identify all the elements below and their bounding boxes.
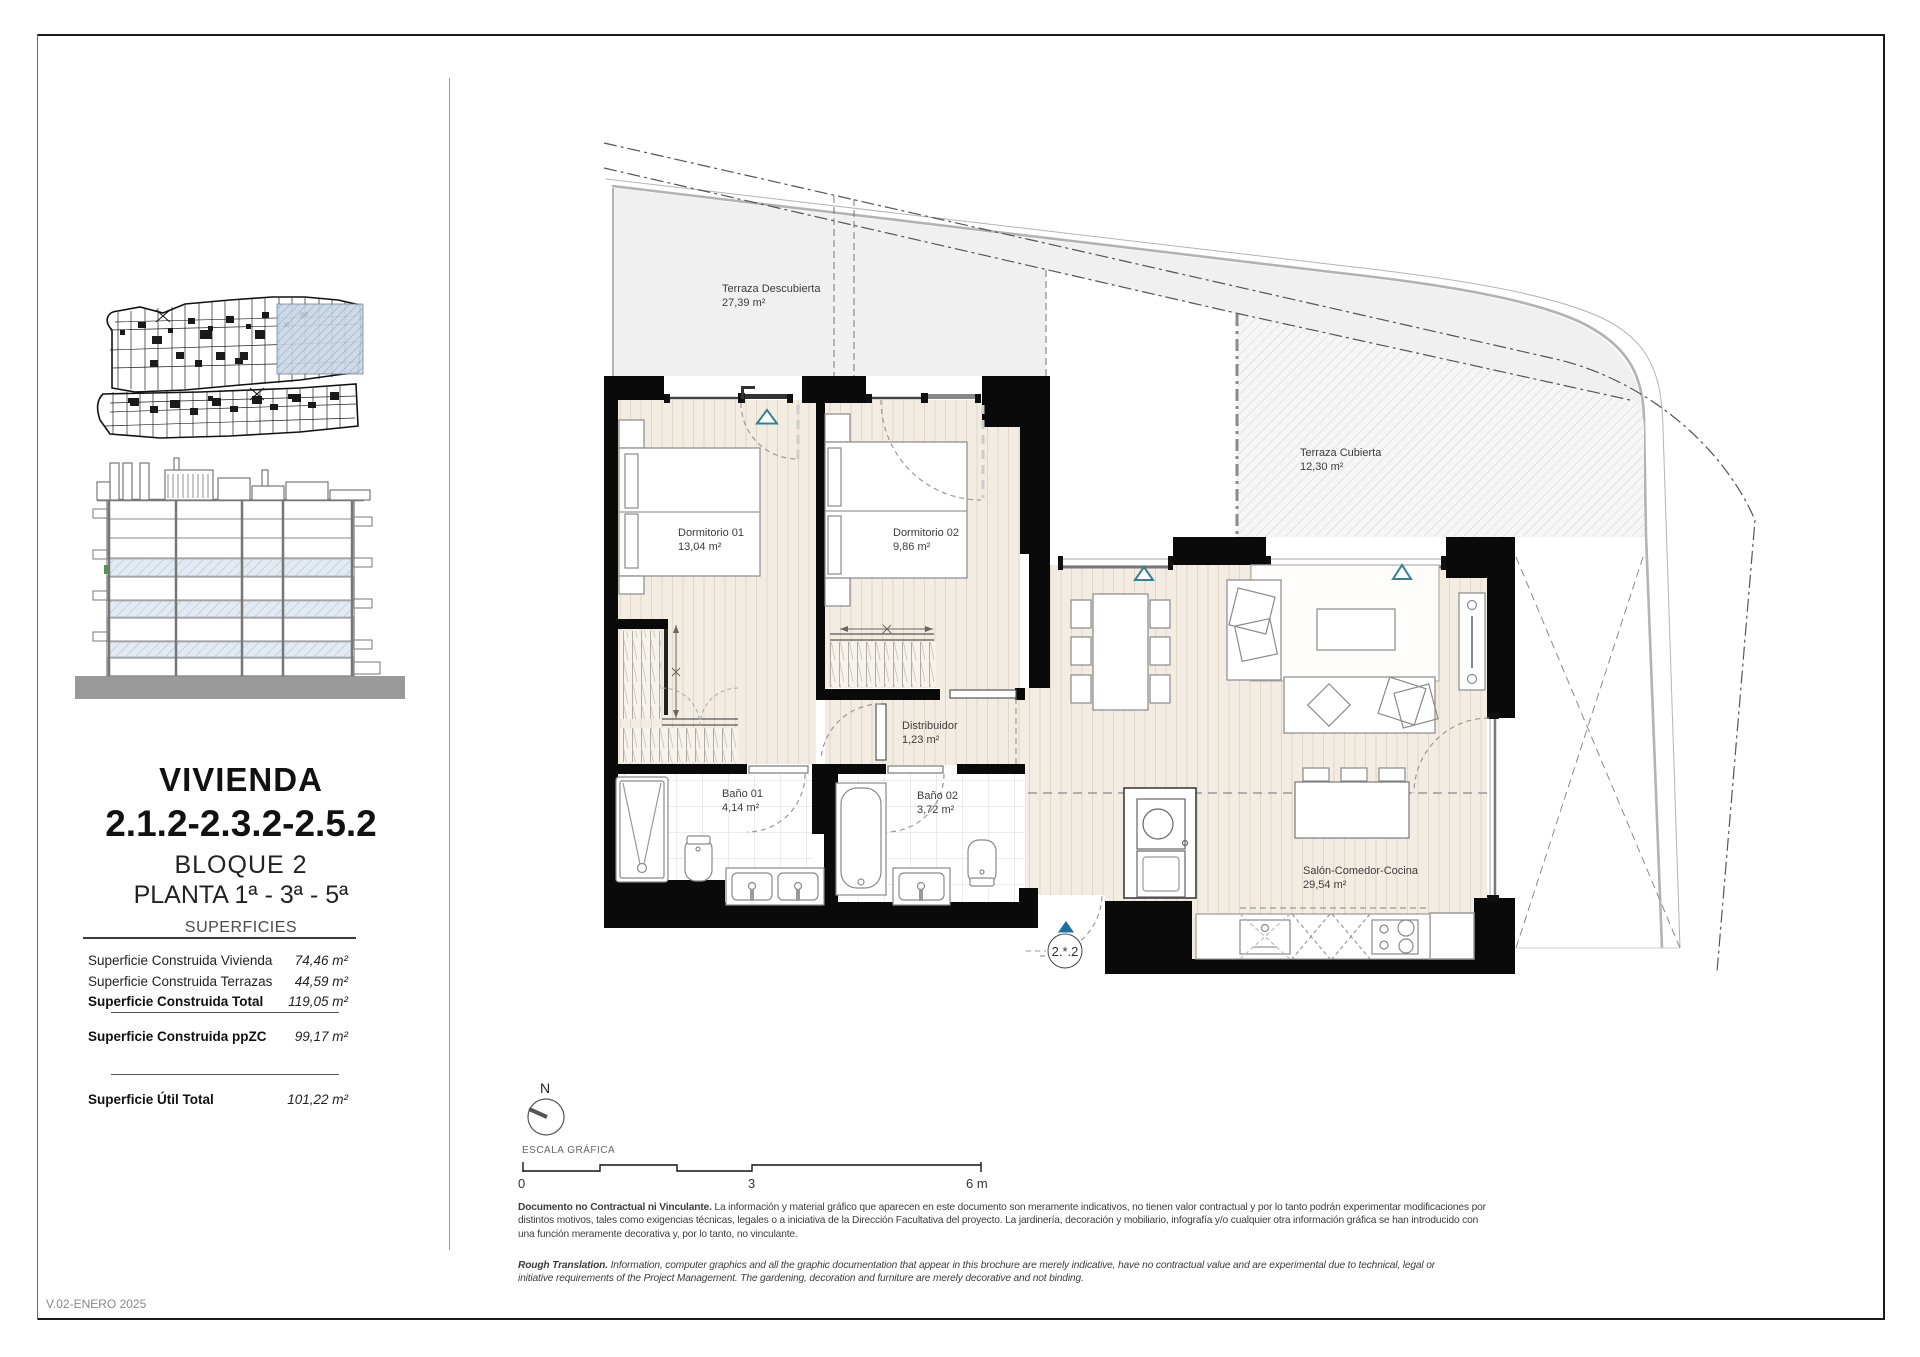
svg-text:Baño 01: Baño 01 <box>722 788 763 800</box>
svg-text:4,14 m²: 4,14 m² <box>722 802 760 814</box>
svg-text:27,39 m²: 27,39 m² <box>722 297 766 309</box>
svg-text:Distribuidor: Distribuidor <box>902 720 958 732</box>
svg-text:9,86 m²: 9,86 m² <box>893 541 931 553</box>
svg-text:3,72 m²: 3,72 m² <box>917 804 955 816</box>
svg-text:Baño 02: Baño 02 <box>917 790 958 802</box>
svg-text:Dormitorio 01: Dormitorio 01 <box>678 527 744 539</box>
svg-text:Terraza Descubierta: Terraza Descubierta <box>722 283 821 295</box>
svg-text:2.*.2: 2.*.2 <box>1052 944 1079 959</box>
svg-text:Dormitorio 02: Dormitorio 02 <box>893 527 959 539</box>
svg-text:12,30 m²: 12,30 m² <box>1300 461 1344 473</box>
svg-text:Salón-Comedor-Cocina: Salón-Comedor-Cocina <box>1303 865 1419 877</box>
svg-text:ESCALA GRÁFICA: ESCALA GRÁFICA <box>522 1143 615 1156</box>
svg-text:1,23 m²: 1,23 m² <box>902 734 940 746</box>
svg-text:0: 0 <box>518 1176 525 1191</box>
svg-text:29,54 m²: 29,54 m² <box>1303 879 1347 891</box>
svg-text:13,04 m²: 13,04 m² <box>678 541 722 553</box>
svg-text:6 m: 6 m <box>966 1176 988 1191</box>
svg-text:Terraza Cubierta: Terraza Cubierta <box>1300 447 1382 459</box>
svg-text:3: 3 <box>748 1176 755 1191</box>
svg-text:N: N <box>540 1080 550 1096</box>
